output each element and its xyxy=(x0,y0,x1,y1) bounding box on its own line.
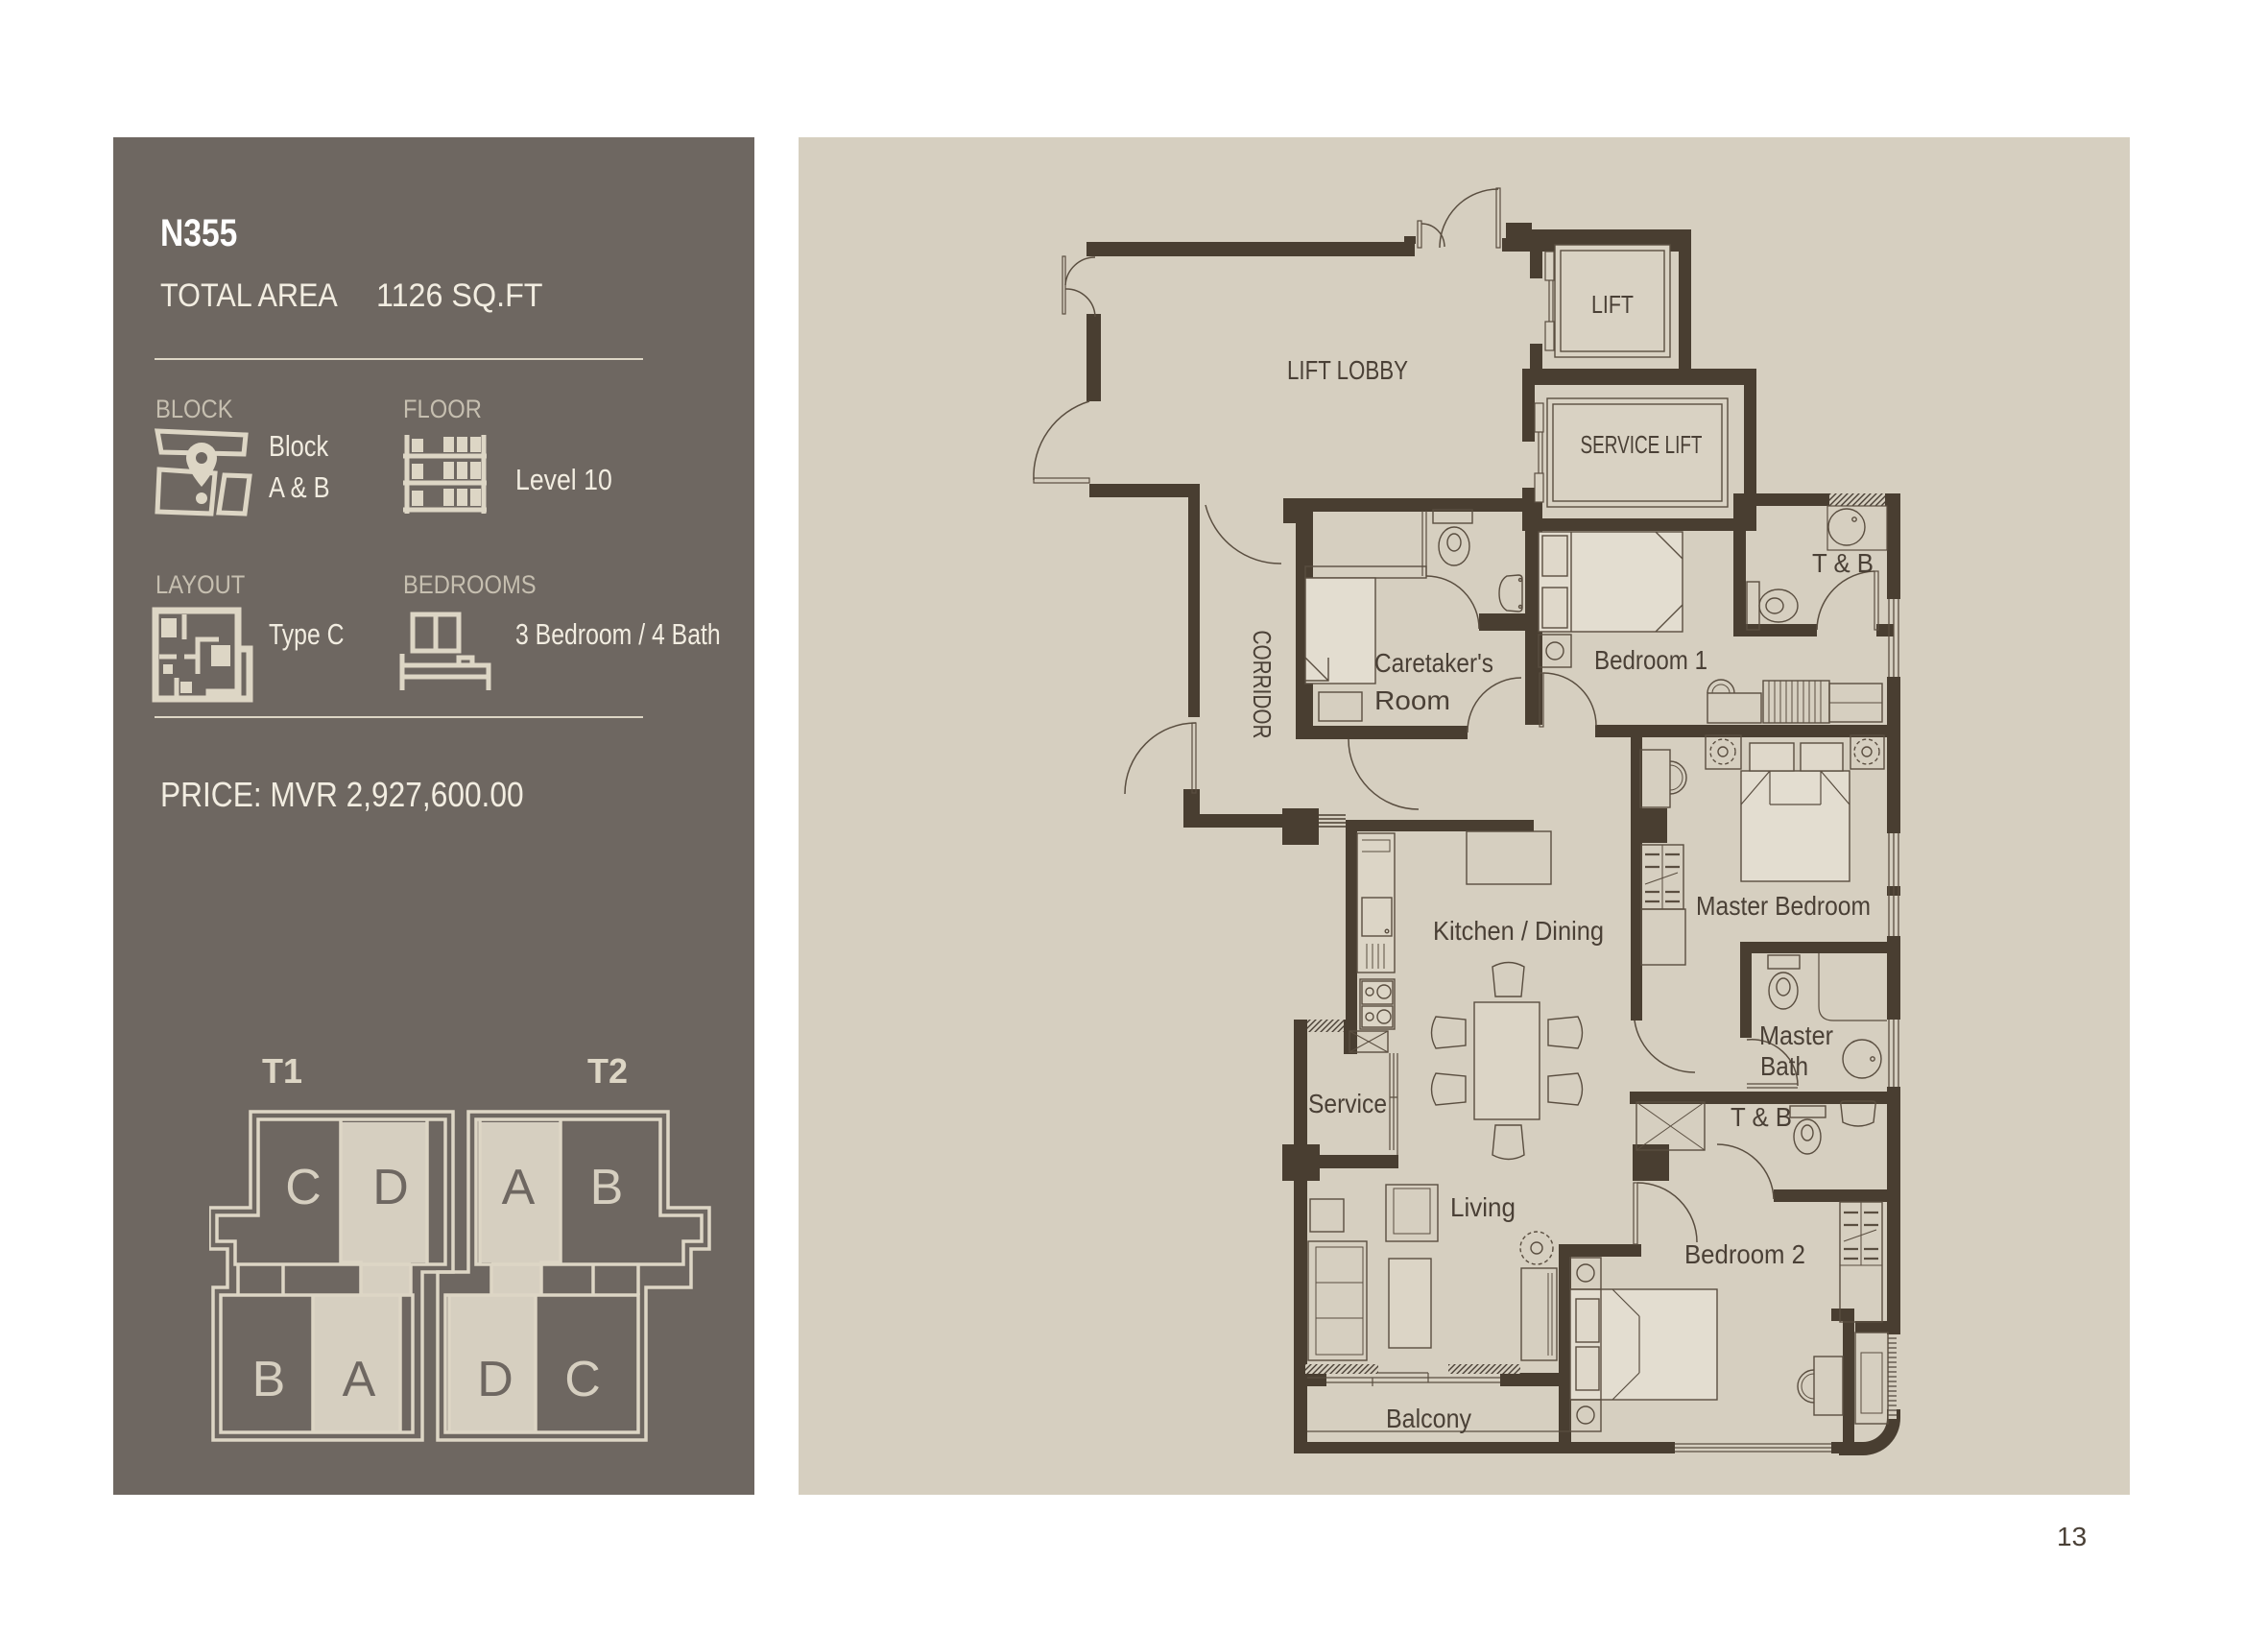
svg-text:C: C xyxy=(285,1160,322,1215)
svg-text:Balcony: Balcony xyxy=(1386,1404,1471,1433)
svg-text:Master: Master xyxy=(1759,1021,1833,1050)
svg-text:LIFT: LIFT xyxy=(1591,290,1634,319)
svg-text:Living: Living xyxy=(1450,1192,1516,1222)
svg-text:Caretaker's: Caretaker's xyxy=(1374,648,1493,678)
svg-text:A: A xyxy=(502,1160,536,1215)
svg-text:CORRIDOR: CORRIDOR xyxy=(1248,631,1277,739)
svg-text:D: D xyxy=(372,1160,409,1215)
svg-text:SERVICE LIFT: SERVICE LIFT xyxy=(1581,430,1703,459)
svg-text:Bedroom 2: Bedroom 2 xyxy=(1684,1239,1805,1269)
svg-text:Bedroom 1: Bedroom 1 xyxy=(1594,645,1707,675)
svg-text:Kitchen / Dining: Kitchen / Dining xyxy=(1433,916,1604,946)
svg-text:T & B: T & B xyxy=(1731,1102,1792,1132)
svg-text:C: C xyxy=(564,1352,601,1407)
svg-text:Master Bedroom: Master Bedroom xyxy=(1696,891,1871,921)
svg-text:Bath: Bath xyxy=(1760,1051,1808,1081)
svg-text:D: D xyxy=(477,1352,513,1407)
svg-text:T & B: T & B xyxy=(1812,548,1874,578)
svg-text:LIFT LOBBY: LIFT LOBBY xyxy=(1287,355,1408,385)
svg-text:B: B xyxy=(590,1160,624,1215)
svg-text:Room: Room xyxy=(1374,685,1450,715)
svg-text:A: A xyxy=(343,1352,376,1407)
svg-text:Service: Service xyxy=(1308,1089,1387,1118)
svg-text:B: B xyxy=(252,1352,286,1407)
